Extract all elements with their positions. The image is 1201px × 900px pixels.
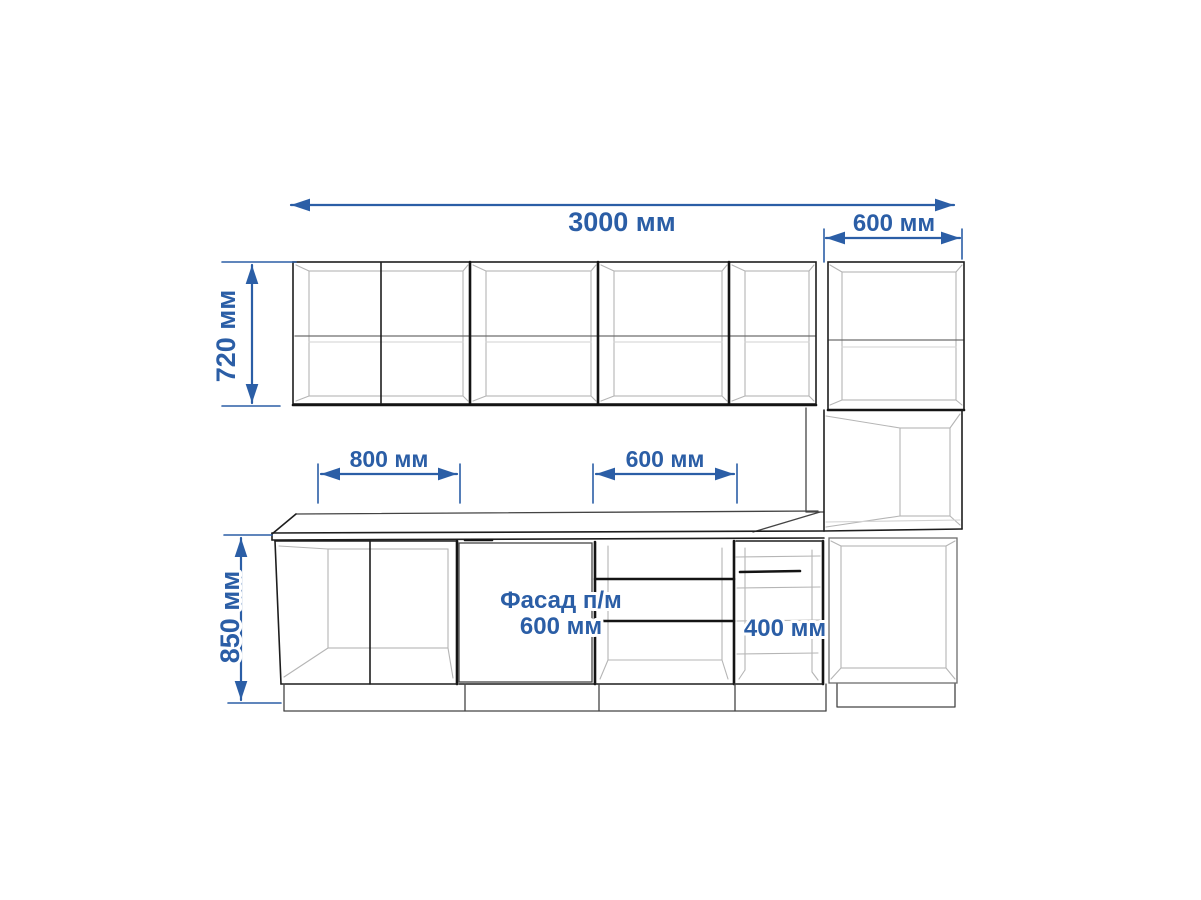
dimension-base-800: 800 мм (318, 446, 460, 503)
wall-cabinet-frame (293, 262, 816, 404)
wall-cabinets (293, 262, 816, 405)
dim-wall-height-label: 720 мм (211, 290, 241, 383)
base-plinth (284, 684, 826, 711)
dimension-wall-height: 720 мм (211, 262, 296, 406)
tall-cabinet-plinth (837, 684, 955, 707)
tall-cabinet-upper-box (828, 262, 964, 410)
dimension-tall-width: 600 мм (824, 210, 962, 262)
dimension-base-600: 600 мм (593, 446, 737, 503)
facade-label-line1: Фасад п/м (500, 587, 622, 614)
drawing-canvas: 3000 мм 600 мм 720 мм 800 мм 600 мм 850 … (0, 0, 1201, 900)
dim-base-600-label: 600 мм (626, 446, 705, 472)
dim-base-800-label: 800 мм (350, 446, 429, 472)
wall-cabinet-interiors (295, 265, 815, 401)
tall-cabinet-lower-box (829, 538, 957, 683)
label-drawer-400: 400 мм (744, 615, 826, 642)
dimension-base-height: 850 мм (215, 535, 281, 703)
wall-cabinet-separators (470, 262, 729, 404)
tall-cabinet-niche (806, 408, 962, 531)
dim-total-width-label: 3000 мм (568, 207, 676, 237)
label-facade: Фасад п/м 600 мм (500, 587, 622, 640)
base-cabinet-800 (275, 541, 457, 684)
dim-base-height-label: 850 мм (215, 571, 245, 664)
dim-drawer-400-label: 400 мм (744, 615, 826, 642)
tall-cabinet (806, 262, 964, 707)
base-cabinet-400 (734, 541, 823, 684)
dim-tall-width-label: 600 мм (853, 210, 935, 237)
facade-label-line2: 600 мм (520, 613, 602, 640)
kitchen-elevation-drawing: 3000 мм 600 мм 720 мм 800 мм 600 мм 850 … (0, 0, 1201, 900)
countertop (272, 511, 824, 540)
